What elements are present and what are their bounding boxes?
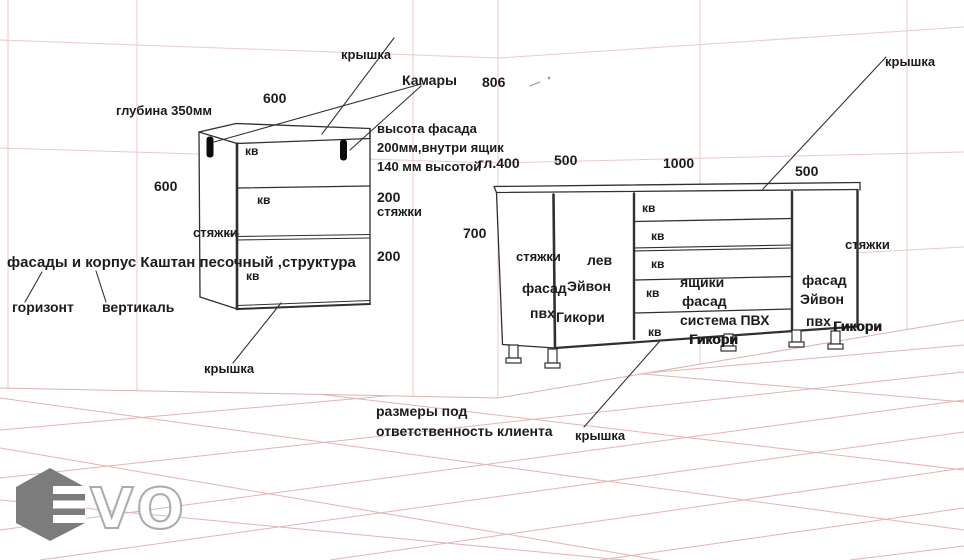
kv-drawer-1: кв — [642, 200, 655, 217]
client-responsibility-note: размеры под ответственность клиента — [376, 401, 576, 442]
lev-label: лев — [587, 250, 612, 270]
kryshka-label-top-left: крышка — [341, 46, 391, 65]
styazhki-sideboard-left: стяжки — [516, 248, 561, 267]
dim-1000: 1000 — [663, 153, 694, 173]
gikori-left-label: Гикори — [556, 307, 605, 327]
dim-500-right: 500 — [795, 161, 818, 181]
kv-drawer-3: кв — [651, 256, 664, 273]
stray-pen-marks — [530, 77, 550, 86]
kv-drawer-5: кв — [648, 324, 661, 341]
eyvon-right-label: Эйвон — [800, 289, 844, 309]
kv-wallcab-2: кв — [257, 192, 270, 209]
cabinet-handle-right-icon — [340, 140, 347, 161]
fasad-left-label: фасад — [522, 278, 567, 298]
dim-600-left: 600 — [154, 176, 177, 196]
eyvon-left-label: Эйвон — [567, 276, 611, 296]
facade-material-note: фасады и корпус Каштан песочный ,структу… — [7, 252, 356, 274]
styazhki-wallcab-label: стяжки — [193, 224, 238, 243]
styazhki-sideboard-right: стяжки — [845, 236, 890, 255]
evo-logo: VO — [16, 468, 188, 542]
gorizont-label: горизонт — [12, 297, 74, 317]
pvh-right-label: пвх — [806, 311, 831, 331]
fasad-right-label: фасад — [802, 270, 847, 290]
cabinet-handle-left-icon — [207, 137, 214, 158]
dim-600-top: 600 — [263, 88, 286, 108]
dim-700: 700 — [463, 223, 486, 243]
dim-500-left: 500 — [554, 150, 577, 170]
vertikal-label: вертикаль — [102, 297, 174, 317]
styazhki-dim-label: стяжки — [377, 203, 422, 222]
kryshka-label-top-right: крышка — [885, 53, 935, 72]
dim-806: 806 — [482, 72, 505, 92]
kamary-label: Камары — [402, 70, 457, 90]
kv-wallcab-1: кв — [245, 143, 258, 160]
sistema-pvh-label: система ПВХ — [680, 310, 769, 330]
wall-cabinet — [199, 124, 370, 310]
fasad-mid-label: фасад — [682, 291, 727, 311]
dim-gl400: гл.400 — [478, 153, 520, 173]
kryshka-label-bottom-center: крышка — [575, 427, 625, 446]
dim-200-lower: 200 — [377, 246, 400, 266]
pvh-left-label: пвх — [530, 303, 555, 323]
kryshka-label-bottom-left: крышка — [204, 360, 254, 379]
kv-drawer-4: кв — [646, 285, 659, 302]
logo-e-notches — [53, 486, 86, 523]
gikori-mid-label: Гикори — [689, 329, 738, 349]
logo-vo-text: VO — [90, 477, 188, 542]
depth-note: глубина 350мм — [116, 102, 212, 121]
drawing-canvas: VO крышка Камары 806 600 глубина 350мм 6… — [0, 0, 964, 560]
gikori-right-label: Гикори — [833, 316, 882, 336]
yashchiki-label: ящики — [680, 272, 724, 292]
kv-drawer-2: кв — [651, 228, 664, 245]
